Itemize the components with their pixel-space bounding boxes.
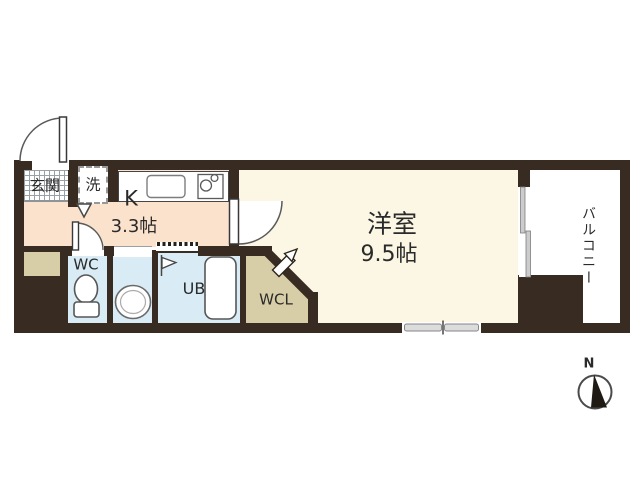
sink-icon — [147, 176, 185, 198]
stove-burner-small-icon — [211, 175, 218, 182]
entrance-door-icon — [20, 117, 67, 162]
genkan-label: 玄関 — [30, 179, 60, 194]
washer-door-marker-icon — [77, 204, 91, 217]
floor-plan: 玄関 洗 K 3.3帖 洋室 9.5帖 WC UB WCL バルコニー N — [0, 0, 640, 480]
main-room-label: 洋室 — [367, 212, 417, 237]
toilet-door-icon — [73, 222, 104, 250]
kitchen-size-label: 3.3帖 — [111, 218, 158, 236]
toilet-label: WC — [73, 258, 98, 273]
balcony-label: バルコニー — [581, 206, 595, 286]
unit-bath-label: UB — [183, 281, 206, 297]
washbasin-icon — [116, 286, 151, 319]
main-room-size-label: 9.5帖 — [361, 244, 418, 266]
toilet-icon — [74, 275, 99, 317]
balcony-sliding-window-icon — [519, 187, 531, 277]
bath-door-icon — [162, 255, 177, 276]
closet-label: WCL — [259, 293, 293, 308]
laundry-label: 洗 — [85, 178, 100, 193]
south-window-icon — [402, 321, 481, 335]
main-room-door-icon — [230, 199, 283, 244]
stove-burner-large-icon — [201, 180, 212, 191]
compass-icon — [579, 375, 612, 409]
kitchen-label: K — [124, 189, 138, 210]
compass-north-label: N — [584, 358, 595, 371]
bathtub-icon — [205, 257, 236, 319]
fixtures-overlay — [0, 0, 640, 480]
